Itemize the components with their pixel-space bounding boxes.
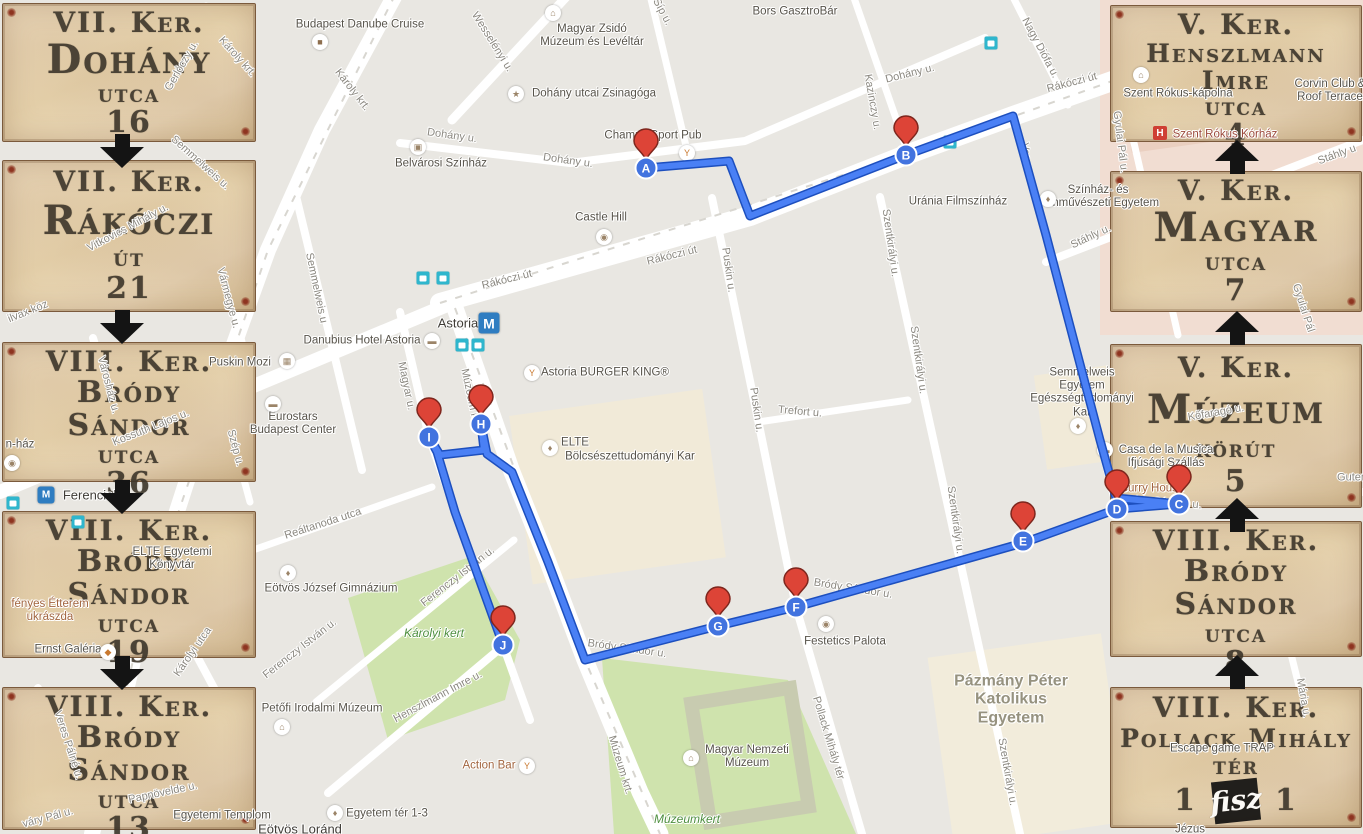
poi-label: Eurostars Budapest Center: [250, 411, 336, 437]
direction-arrow-up: [1215, 498, 1259, 532]
sign-street-name: Dohány: [11, 38, 247, 81]
poi-label: Károlyi kert: [404, 627, 464, 641]
tram-icon[interactable]: [944, 136, 957, 149]
school-icon: ♦: [280, 565, 296, 581]
sign-district: V. Ker.: [1119, 10, 1353, 40]
poi-label: Eötvös Loránd: [258, 823, 342, 834]
poi-label: Budapest Danube Cruise: [296, 18, 425, 31]
direction-arrow-down: [100, 656, 144, 690]
hotel-icon: ▬: [265, 396, 281, 412]
poi-label: Eötvös József Gimnázium: [265, 582, 398, 595]
sign-street-name: Bródy Sándor: [1119, 556, 1353, 621]
fisz-logo: fisz: [1211, 778, 1261, 825]
sign-district: VII. Ker.: [11, 8, 247, 38]
bus-icon[interactable]: [72, 516, 85, 529]
poi-label: Action Bar: [462, 759, 515, 772]
university-icon: ♦: [542, 440, 558, 456]
pub-icon: Y: [679, 145, 695, 161]
sign-district: VIII. Ker.: [1119, 693, 1353, 723]
poi-label: Egyetem tér 1-3: [346, 807, 428, 820]
sign-street-name: Magyar: [1119, 206, 1353, 249]
sign-number: 1: [1174, 785, 1197, 817]
museum-icon: ⌂: [545, 5, 561, 21]
poi-label: Bors GasztroBár: [753, 5, 838, 18]
map-screenshot: VII. Ker.Dohányutca16VII. Ker.Rákócziút2…: [0, 0, 1363, 834]
university-icon: ♦: [327, 805, 343, 821]
sign-number: 1: [1275, 785, 1298, 817]
poi-label: Petőfi Irodalmi Múzeum: [262, 702, 383, 715]
poi-label: Ernst Galéria: [34, 643, 101, 656]
bus-icon[interactable]: [437, 272, 450, 285]
sign-number: 7: [1119, 275, 1353, 307]
poi-label: Castle Hill: [575, 211, 627, 224]
bus-icon[interactable]: [7, 497, 20, 510]
synagogue-icon: ★: [508, 86, 524, 102]
sign-street-type: utca: [1119, 621, 1353, 647]
poi-label: Champs Sport Pub: [604, 129, 701, 142]
sign-district: VIII. Ker.: [11, 516, 247, 546]
direction-arrow-up: [1215, 140, 1259, 174]
poi-label: Casa de la Musica Ifjúsági Szállás: [1119, 444, 1214, 470]
poi-label: Bölcsészettudományi Kar: [565, 450, 695, 463]
tram-icon[interactable]: [417, 272, 430, 285]
sign-street-type: utca: [11, 442, 247, 468]
sign-district: VIII. Ker.: [11, 692, 247, 722]
street-sign-left-1: VII. Ker.Dohányutca16: [2, 3, 256, 142]
poi-label: ELTE: [561, 436, 589, 449]
poi-label: Corvin Club & Roof Terrace: [1295, 78, 1363, 104]
university-icon: ♦: [1040, 191, 1056, 207]
poi-label: Dohány utcai Zsinagóga: [532, 87, 656, 100]
metro-icon[interactable]: M: [479, 313, 500, 334]
bar-icon: Y: [519, 758, 535, 774]
poi-label: Escape game TRAP: [1170, 742, 1274, 755]
pazmany-block-area: [928, 633, 1128, 834]
museum-icon: ⌂: [683, 750, 699, 766]
direction-arrow-up: [1215, 311, 1259, 345]
bus-icon[interactable]: [985, 37, 998, 50]
sign-district: V. Ker.: [1119, 353, 1353, 383]
direction-arrow-up: [1215, 655, 1259, 689]
metro-icon[interactable]: M: [38, 487, 55, 504]
direction-arrow-down: [100, 134, 144, 168]
poi-label: Festetics Palota: [804, 635, 886, 648]
poi-label: n-ház: [6, 438, 35, 451]
poi-label: Magyar Nemzeti Múzeum: [705, 744, 789, 770]
street-sign-right-4: VIII. Ker.Bródy Sándorutca8: [1110, 521, 1362, 657]
poi-label: Astoria BURGER KING®: [541, 366, 669, 379]
poi-label: Curry House: [1120, 482, 1185, 495]
sign-street-type: utca: [11, 81, 247, 107]
museum-icon: ⌂: [274, 719, 290, 735]
camera-icon: ◉: [596, 229, 612, 245]
direction-arrow-down: [100, 480, 144, 514]
church-icon: ⌂: [1133, 67, 1149, 83]
camera-icon: ◉: [818, 616, 834, 632]
bus-icon[interactable]: [472, 339, 485, 352]
poi-label: fényes Étterem ukrászda: [11, 598, 88, 624]
sign-street-type: utca: [1119, 249, 1353, 275]
direction-arrow-down: [100, 310, 144, 344]
cinema-icon: ▦: [279, 353, 295, 369]
poi-label: Uránia Filmszínház: [909, 195, 1007, 208]
poi-label: Egyetemi Templom: [173, 809, 271, 822]
university-icon: ♦: [1070, 418, 1086, 434]
poi-label: Belvárosi Színház: [395, 157, 487, 170]
theater-icon: ▣: [410, 139, 426, 155]
camera-icon: ◉: [4, 455, 20, 471]
tram-icon[interactable]: [456, 339, 469, 352]
restaurant-icon: Y: [524, 365, 540, 381]
sign-street-type: tér: [1119, 753, 1353, 779]
poi-label: Semmelweis Egyetem Egészségtudományi Kar: [1030, 367, 1134, 420]
sign-street-name: Bródy Sándor: [11, 722, 247, 787]
poi-label: Puskin Mozi: [209, 356, 271, 369]
sign-street-type: út: [11, 245, 247, 271]
poi-label: Szent Rókus-kápolna: [1123, 87, 1232, 100]
street-label: Guten: [1337, 472, 1363, 485]
hospital-icon: H: [1153, 126, 1167, 140]
sign-number: 21: [11, 273, 247, 305]
poi-label: ELTE Egyetemi Könyvtár: [132, 546, 211, 572]
poi-label: Pázmány Péter Katolikus Egyetem: [954, 672, 1068, 727]
poi-label: Magyar Zsidó Múzeum és Levéltár: [540, 23, 644, 49]
poi-label: Múzeumkert: [654, 813, 720, 827]
street-sign-left-4: VIII. Ker.Bródy Sándorutca19: [2, 511, 256, 658]
cruise-icon: ■: [312, 34, 328, 50]
sign-number-row: 1fisz1: [1119, 780, 1353, 822]
poi-label: Danubius Hotel Astoria: [304, 334, 421, 347]
hotel-icon: ▬: [1097, 442, 1113, 458]
street-sign-right-5: VIII. Ker.Pollack Mihálytér1fisz1: [1110, 687, 1362, 828]
hotel-icon: ▬: [424, 333, 440, 349]
poi-label: Astoria: [438, 317, 478, 332]
poi-label: Jézus: [1175, 823, 1205, 834]
